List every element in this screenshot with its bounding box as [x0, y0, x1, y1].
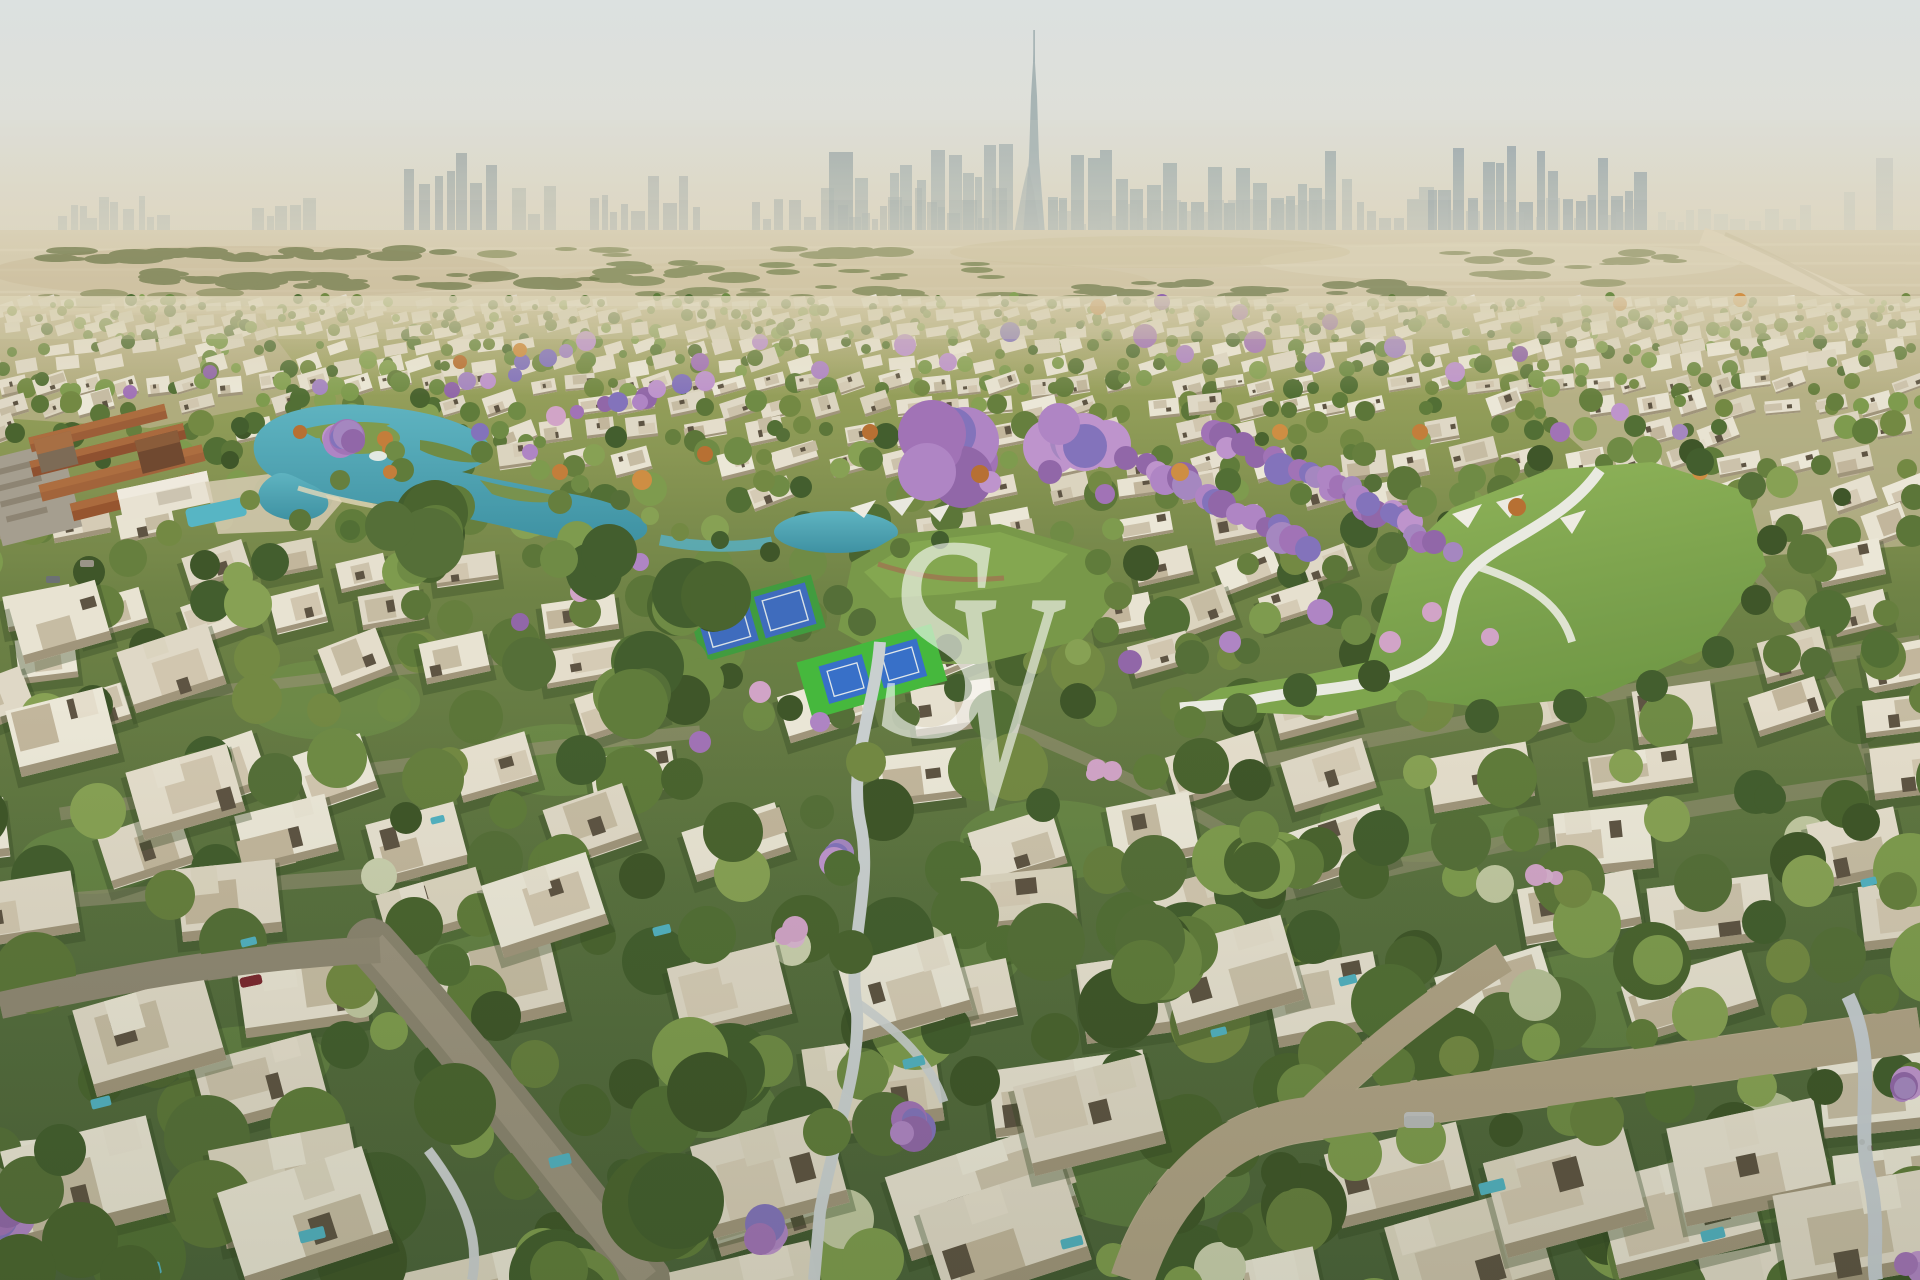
- svg-text:V: V: [946, 526, 1066, 874]
